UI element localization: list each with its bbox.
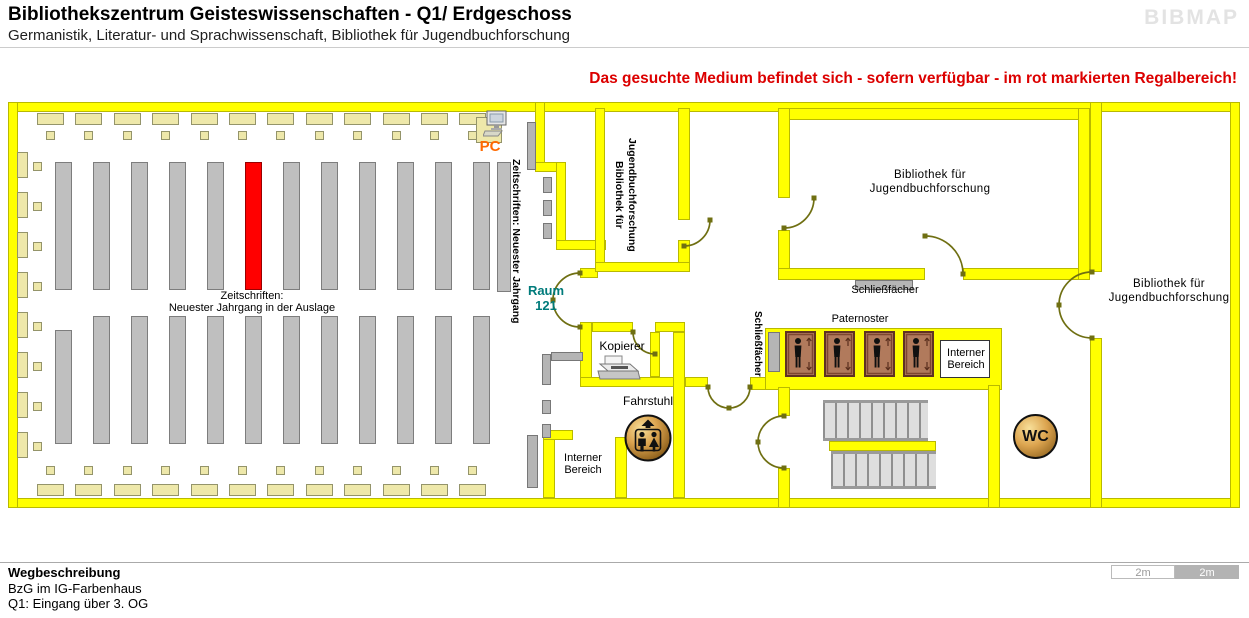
chair	[33, 162, 42, 171]
footer-heading: Wegbeschreibung	[8, 565, 120, 580]
door-arc	[758, 442, 784, 468]
locker-shelf	[543, 177, 552, 193]
reading-table	[114, 484, 141, 496]
schliessfaecher-label: Schließfächer	[840, 284, 930, 296]
jugendbuch-right-line1: Bibliothek für	[1102, 277, 1236, 291]
bookshelf	[131, 316, 148, 444]
pc-icon	[483, 110, 510, 137]
room-jugendbuch-vertical-label: Bibliothek für Jugendbuchforschung	[612, 120, 646, 270]
wall-segment	[592, 322, 633, 332]
wall-segment	[535, 102, 545, 170]
wall-segment	[778, 387, 790, 416]
interner-left-line1: Interner	[550, 452, 616, 464]
reading-table	[37, 113, 64, 125]
highlighted-bookshelf	[245, 162, 262, 290]
staircase-upper	[823, 400, 928, 441]
reading-table	[152, 113, 179, 125]
wall-segment	[595, 108, 605, 272]
wall-segment	[778, 268, 925, 280]
chair	[353, 131, 362, 140]
reading-table	[37, 484, 64, 496]
chair	[392, 131, 401, 140]
wall-segment	[678, 108, 690, 220]
bookshelf	[321, 316, 338, 444]
wall-segment	[1090, 338, 1102, 508]
jugendbuch-right-line2: Jugendbuchforschung	[1102, 291, 1236, 305]
chair	[238, 131, 247, 140]
reading-table	[191, 484, 218, 496]
reading-table	[17, 432, 28, 458]
wall-segment	[685, 377, 708, 387]
bookshelf	[473, 316, 490, 444]
paternoster-cabin	[824, 331, 855, 377]
bookshelf	[435, 316, 452, 444]
bookshelf	[169, 316, 186, 444]
paternoster-cabin	[903, 331, 934, 377]
room-jugendbuch-right-label: Bibliothek für Jugendbuchforschung	[1102, 277, 1236, 305]
reading-table	[75, 113, 102, 125]
chair	[123, 131, 132, 140]
raum-label-line2: 121	[520, 298, 572, 313]
bookshelf	[131, 162, 148, 290]
bookshelf	[93, 316, 110, 444]
chair	[315, 131, 324, 140]
chair	[123, 466, 132, 475]
door-arc	[1059, 305, 1092, 338]
bookshelf	[397, 162, 414, 290]
interner-right-line2: Bereich	[933, 359, 999, 371]
locker-shelf	[542, 354, 551, 385]
door-arc	[784, 198, 814, 228]
locker-shelf	[543, 223, 552, 239]
reading-table	[17, 392, 28, 418]
staircase-lower	[831, 451, 936, 489]
door-arc	[758, 416, 784, 442]
wall-segment	[778, 108, 790, 198]
wall-segment	[650, 332, 660, 377]
chair	[33, 202, 42, 211]
bookshelf	[55, 162, 72, 290]
reading-table	[344, 484, 371, 496]
chair	[238, 466, 247, 475]
interner-bereich-right-room: Interner Bereich	[940, 340, 990, 378]
door-arc	[729, 387, 750, 408]
interner-right-line1: Interner	[933, 347, 999, 359]
reading-table	[421, 484, 448, 496]
room-jugendbuch-top-label: Bibliothek für Jugendbuchforschung	[830, 168, 1030, 196]
wall-segment	[673, 332, 685, 498]
reading-table	[191, 113, 218, 125]
reading-table	[344, 113, 371, 125]
chair	[33, 402, 42, 411]
reading-table	[75, 484, 102, 496]
reading-table	[17, 312, 28, 338]
chair	[33, 322, 42, 331]
bookshelf	[321, 162, 338, 290]
fahrstuhl-label: Fahrstuhl	[616, 395, 680, 407]
schliessfaecher-vertical-label: Schließfächer	[751, 298, 764, 390]
reading-table	[383, 113, 410, 125]
bookshelf	[359, 162, 376, 290]
locker-shelf	[527, 435, 538, 488]
paternoster-cabin	[785, 331, 816, 377]
raum-label-line1: Raum	[520, 283, 572, 298]
chair	[33, 442, 42, 451]
reading-table	[17, 232, 28, 258]
reading-table	[459, 484, 486, 496]
chair	[33, 242, 42, 251]
interner-left-line2: Bereich	[550, 464, 616, 476]
door-arc	[708, 387, 729, 408]
footer-divider	[0, 562, 1249, 563]
bookshelf	[245, 316, 262, 444]
paternoster-cabin	[864, 331, 895, 377]
reading-table	[229, 113, 256, 125]
bookshelf	[359, 316, 376, 444]
chair	[353, 466, 362, 475]
bookshelf	[283, 316, 300, 444]
chair	[468, 466, 477, 475]
bookshelf	[169, 162, 186, 290]
locker-shelf	[542, 400, 551, 414]
reading-table	[152, 484, 179, 496]
wall-segment	[988, 385, 1000, 508]
wall-segment	[963, 268, 1090, 280]
reading-table	[17, 152, 28, 178]
chair	[392, 466, 401, 475]
bookshelf	[397, 316, 414, 444]
reading-table	[421, 113, 448, 125]
reading-table	[267, 484, 294, 496]
chair	[33, 362, 42, 371]
chair	[430, 466, 439, 475]
elevator-icon	[623, 413, 673, 463]
pc-label: PC	[472, 138, 508, 155]
wall-segment	[1230, 102, 1240, 508]
chair	[84, 131, 93, 140]
wc-label: WC	[1022, 428, 1049, 446]
reading-table	[267, 113, 294, 125]
bookshelf	[55, 330, 72, 444]
bookshelf	[207, 316, 224, 444]
chair	[430, 131, 439, 140]
kopierer-label: Kopierer	[592, 340, 652, 352]
reading-table	[17, 352, 28, 378]
wall-segment	[778, 108, 1090, 120]
chair	[46, 131, 55, 140]
door-arc	[925, 236, 963, 274]
locker-shelf	[768, 332, 780, 372]
bookshelf	[473, 162, 490, 290]
jugendbuch-line1: Bibliothek für	[612, 120, 625, 270]
reading-table	[306, 113, 333, 125]
reading-table	[17, 192, 28, 218]
paternoster-label: Paternoster	[815, 313, 905, 325]
locker-shelf	[543, 200, 552, 216]
bibmap-page: Bibliothekszentrum Geisteswissenschaften…	[0, 0, 1249, 618]
chair	[200, 466, 209, 475]
copier-icon	[594, 354, 642, 382]
interner-right-label: Interner Bereich	[933, 347, 999, 371]
locker-shelf	[527, 122, 536, 170]
chair	[200, 131, 209, 140]
shelf-label-line1: Zeitschriften:	[152, 290, 352, 302]
chair	[46, 466, 55, 475]
reading-table	[306, 484, 333, 496]
wc-icon: WC	[1013, 414, 1058, 459]
chair	[84, 466, 93, 475]
bookshelf	[207, 162, 224, 290]
scale-bar-segment-dark: 2m	[1175, 565, 1239, 579]
reading-table	[114, 113, 141, 125]
chair	[161, 466, 170, 475]
jugendbuch-line2: Jugendbuchforschung	[625, 120, 638, 270]
wall-segment	[778, 468, 790, 508]
jugendbuch-top-line1: Bibliothek für	[830, 168, 1030, 182]
chair	[276, 131, 285, 140]
reading-table	[17, 272, 28, 298]
raum-121-label: Raum 121	[520, 283, 572, 313]
reading-table	[229, 484, 256, 496]
jugendbuch-top-line2: Jugendbuchforschung	[830, 182, 1030, 196]
bookshelf	[93, 162, 110, 290]
chair	[161, 131, 170, 140]
shelf-label-line2: Neuester Jahrgang in der Auslage	[152, 302, 352, 314]
wall-segment	[8, 498, 1240, 508]
wall-segment	[1078, 108, 1090, 280]
stair-landing	[829, 441, 936, 451]
chair	[33, 282, 42, 291]
bookshelf	[283, 162, 300, 290]
locker-shelf	[542, 424, 551, 438]
scale-bar: 2m 2m	[1111, 565, 1239, 579]
interner-left-label: Interner Bereich	[550, 452, 616, 476]
wall-segment	[655, 322, 685, 332]
reading-room-shelf-label: Zeitschriften: Neuester Jahrgang in der …	[152, 290, 352, 314]
floor-plan: Zeitschriften: Neuester Jahrgang in der …	[0, 0, 1249, 618]
scale-bar-segment-light: 2m	[1111, 565, 1175, 579]
footer-line1: BzG im IG-Farbenhaus	[8, 581, 142, 596]
locker-shelf	[551, 352, 583, 361]
reading-table	[383, 484, 410, 496]
wall-segment	[556, 162, 566, 250]
wall-segment	[1090, 102, 1102, 272]
chair	[276, 466, 285, 475]
bookshelf	[435, 162, 452, 290]
chair	[315, 466, 324, 475]
footer-line2: Q1: Eingang über 3. OG	[8, 596, 148, 611]
